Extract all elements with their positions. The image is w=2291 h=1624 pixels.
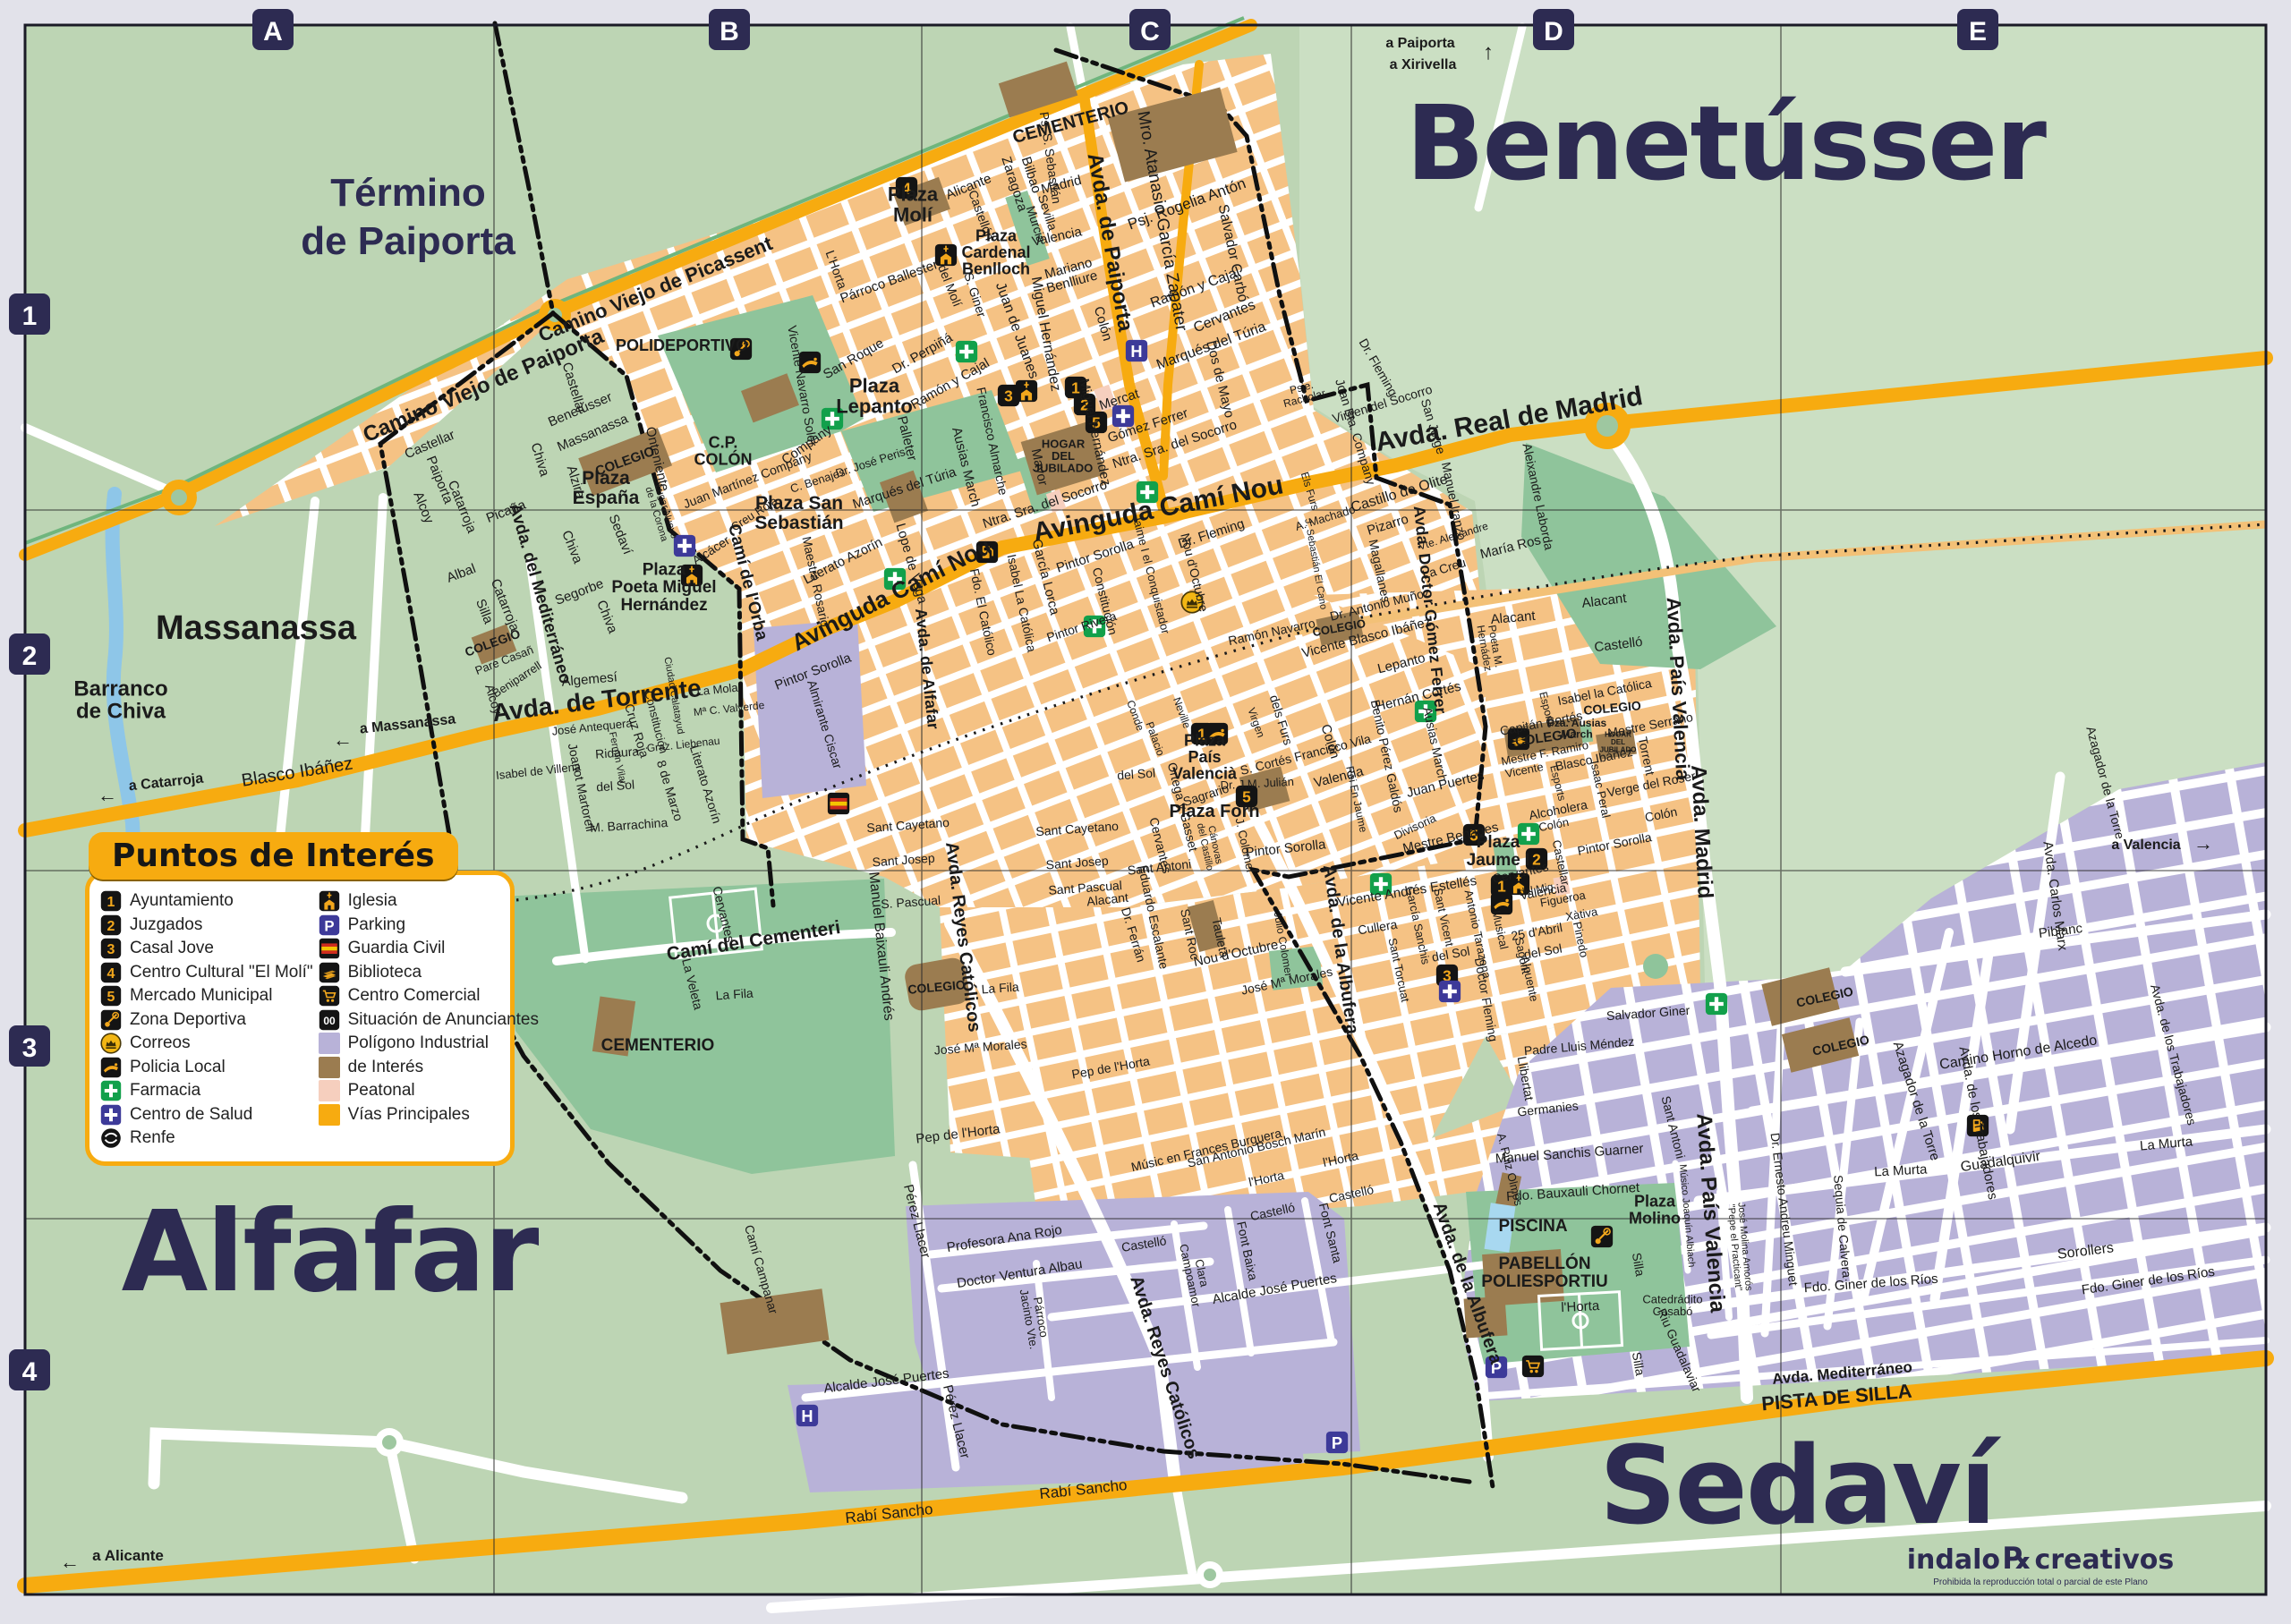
city-name-label: Benetússer xyxy=(1406,84,2047,204)
legend-item: Centro Comercial xyxy=(319,984,503,1008)
grid-col-C: C xyxy=(1129,9,1171,50)
legend-box: AyuntamientoJuzgadosCasal JoveCentro Cul… xyxy=(85,871,515,1166)
police-icon xyxy=(100,1057,122,1078)
map-label: POLIDEPORTIVO xyxy=(616,336,748,354)
legend-column-left: AyuntamientoJuzgadosCasal JoveCentro Cul… xyxy=(100,889,313,1151)
map-label: Barrancode Chiva xyxy=(73,677,167,724)
map-canvas: 1 2 3 4 5 00 P H xyxy=(0,0,2291,1620)
legend-item: Policia Local xyxy=(100,1056,313,1080)
credit-logo-icon: ℞ xyxy=(2000,1541,2034,1577)
grid-col-B: B xyxy=(709,9,750,50)
legend-item: de Interés xyxy=(319,1056,503,1080)
legend-item-label: Iglesia xyxy=(348,891,397,911)
city-name-label: Alfafar xyxy=(122,1187,540,1317)
legend-item: Parking xyxy=(319,914,503,938)
legend-item: Correos xyxy=(100,1032,313,1056)
peatonal-swatch xyxy=(319,1080,340,1101)
legend-item: Casal Jove xyxy=(100,937,313,961)
zona-icon xyxy=(100,1009,122,1031)
svg-text:3: 3 xyxy=(22,1033,38,1063)
map-label: Massanassa xyxy=(156,609,357,647)
legend-item: Farmacia xyxy=(100,1079,313,1103)
map-label: La Fila xyxy=(981,980,1019,997)
map-label: CEMENTERIO xyxy=(601,1036,715,1055)
legend-item: Guardia Civil xyxy=(319,937,503,961)
map-label: del Sol xyxy=(596,778,635,795)
correos-icon xyxy=(100,1033,122,1054)
credit: indalo℞creativos Prohibida la reproducci… xyxy=(1852,1541,2228,1587)
map-label: del Sol xyxy=(1117,766,1156,783)
legend-item: Biblioteca xyxy=(319,961,503,985)
legend-column-right: IglesiaParkingGuardia CivilBibliotecaCen… xyxy=(319,889,503,1151)
map-label: → xyxy=(2193,832,2213,855)
guardia-icon xyxy=(319,938,340,959)
legend-item-label: de Interés xyxy=(348,1058,424,1077)
legend-item: Renfe xyxy=(100,1127,313,1151)
legend-item-label: Guardia Civil xyxy=(348,939,446,958)
legend-item-label: Ayuntamiento xyxy=(130,891,234,911)
credit-name: indalo℞creativos xyxy=(1852,1541,2228,1577)
legend-item: Centro Cultural "El Molí" xyxy=(100,961,313,985)
map-label: ↑ xyxy=(1483,40,1494,64)
map-label: La Murta xyxy=(1874,1161,1929,1179)
svg-text:E: E xyxy=(1969,17,1987,47)
interes-swatch xyxy=(319,1057,340,1078)
grid-row-4: 4 xyxy=(9,1349,50,1390)
map-label: a Xirivella xyxy=(1390,57,1457,72)
map-label: a Paiporta xyxy=(1385,36,1454,51)
num-4-icon xyxy=(100,962,122,983)
legend-item: Mercado Municipal xyxy=(100,984,313,1008)
cart-icon xyxy=(319,985,340,1007)
map-label: a Valencia xyxy=(2111,838,2180,853)
legend-item-label: Mercado Municipal xyxy=(130,986,272,1006)
legend-item: Vías Principales xyxy=(319,1103,503,1127)
credit-disclaimer: Prohibida la reproducción total o parcia… xyxy=(1852,1577,2228,1587)
map-label: PISCINA xyxy=(1498,1217,1567,1236)
svg-text:D: D xyxy=(1544,17,1563,47)
map-label: Término xyxy=(330,171,486,215)
map-label: de Paiporta xyxy=(301,219,515,263)
num-1-icon xyxy=(100,890,122,912)
legend-item-label: Peatonal xyxy=(348,1081,415,1101)
map-label: PlazaMolí xyxy=(888,183,939,226)
hotel-icon xyxy=(796,1405,818,1426)
legend-item-label: Polígono Industrial xyxy=(348,1033,489,1053)
church-icon xyxy=(935,244,957,266)
legend-item-label: Situación de Anunciantes xyxy=(348,1010,539,1030)
grid-col-E: E xyxy=(1957,9,1998,50)
legend-item: Zona Deportiva xyxy=(100,1008,313,1033)
map-label: l'Horta xyxy=(1561,1298,1600,1315)
anunciantes-icon xyxy=(319,1009,340,1031)
num-3-icon xyxy=(100,938,122,959)
map-label: ← xyxy=(98,784,117,806)
legend-item: Polígono Industrial xyxy=(319,1032,503,1056)
legend-item-label: Centro de Salud xyxy=(130,1105,252,1125)
legend-title: Puntos de Interés xyxy=(89,832,458,880)
legend-item: Situación de Anunciantes xyxy=(319,1008,503,1033)
map-label: PlazaMolino xyxy=(1629,1193,1681,1228)
farmacia-icon xyxy=(1706,993,1727,1015)
grid-col-D: D xyxy=(1533,9,1574,50)
legend-item: Iglesia xyxy=(319,889,503,914)
parking-icon xyxy=(1326,1432,1348,1453)
svg-text:1: 1 xyxy=(22,302,38,331)
grid-col-A: A xyxy=(252,9,294,50)
legend-item-label: Farmacia xyxy=(130,1081,200,1101)
zona-icon xyxy=(1591,1226,1613,1247)
grid-row-3: 3 xyxy=(9,1025,50,1067)
legend-panel: Puntos de Interés AyuntamientoJuzgadosCa… xyxy=(85,832,515,1166)
legend-item-label: Renfe xyxy=(130,1128,175,1148)
legend-item: Ayuntamiento xyxy=(100,889,313,914)
cart-icon xyxy=(1522,1356,1544,1377)
svg-text:B: B xyxy=(720,17,739,47)
svg-text:C: C xyxy=(1140,17,1160,47)
legend-item: Juzgados xyxy=(100,914,313,938)
map-page: { "title": "Plano de Benetússer", "color… xyxy=(0,0,2291,1620)
legend-item: Centro de Salud xyxy=(100,1103,313,1127)
legend-item-label: Biblioteca xyxy=(348,963,422,982)
vias-swatch xyxy=(319,1104,340,1126)
map-label: ← xyxy=(60,1551,80,1573)
legend-item-label: Parking xyxy=(348,915,405,935)
city-name-label: Sedaví xyxy=(1599,1424,2002,1549)
map-label: PABELLÓNPOLIESPORTIU xyxy=(1481,1254,1607,1291)
legend-item-label: Juzgados xyxy=(130,915,202,935)
poligono-swatch xyxy=(319,1033,340,1054)
legend-item-label: Centro Cultural "El Molí" xyxy=(130,963,313,982)
hotel-icon xyxy=(1126,340,1147,361)
farmacia-icon xyxy=(956,341,977,362)
farmacia-icon xyxy=(1518,823,1539,845)
renfe-icon xyxy=(100,1127,122,1149)
guardia-icon xyxy=(828,793,849,814)
parking-icon xyxy=(319,914,340,936)
svg-text:A: A xyxy=(263,17,283,47)
church-icon xyxy=(1016,380,1037,402)
num-5-icon xyxy=(100,985,122,1007)
grid-row-2: 2 xyxy=(9,633,50,675)
map-label: La Fila xyxy=(715,986,754,1003)
salud-icon xyxy=(100,1104,122,1126)
map-label: a Alicante xyxy=(92,1547,164,1564)
legend-item-label: Zona Deportiva xyxy=(130,1010,246,1030)
svg-text:4: 4 xyxy=(22,1357,38,1387)
legend-item-label: Casal Jove xyxy=(130,939,214,958)
num-2-icon xyxy=(100,914,122,936)
legend-item-label: Policia Local xyxy=(130,1058,226,1077)
map-label: ← xyxy=(333,728,353,751)
farmacia-icon xyxy=(100,1080,122,1101)
biblioteca-icon xyxy=(319,962,340,983)
legend-item-label: Centro Comercial xyxy=(348,986,481,1006)
legend-item-label: Vías Principales xyxy=(348,1105,470,1125)
grid-row-1: 1 xyxy=(9,293,50,335)
legend-item: Peatonal xyxy=(319,1079,503,1103)
city-map: 1 2 3 4 5 00 P H xyxy=(0,0,2291,1620)
svg-text:2: 2 xyxy=(22,642,38,671)
legend-item-label: Correos xyxy=(130,1033,191,1053)
salud-icon xyxy=(1439,981,1461,1002)
church-icon xyxy=(319,890,340,912)
